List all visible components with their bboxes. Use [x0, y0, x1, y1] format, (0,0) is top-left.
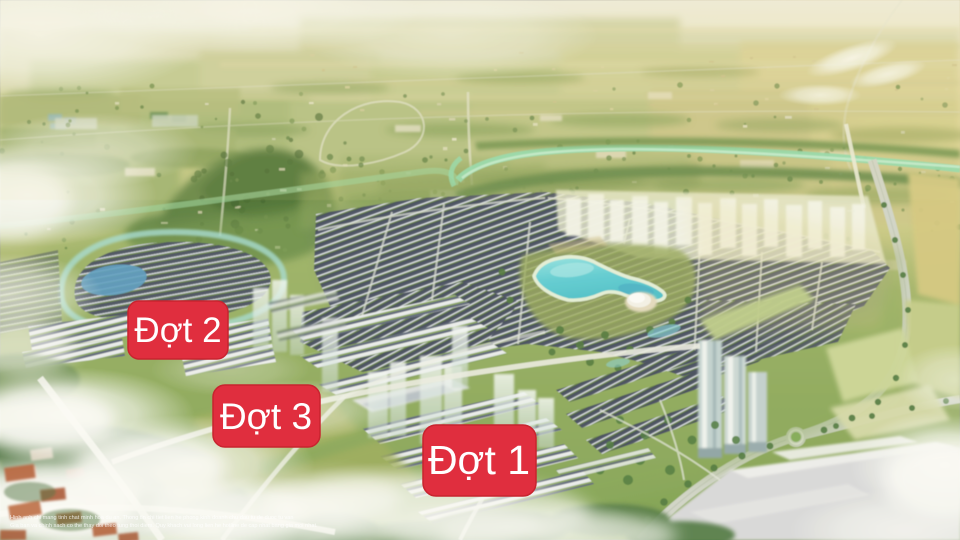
svg-text:Hinh anh chi mang tinh chat mi: Hinh anh chi mang tinh chat minh hoa du …	[10, 515, 294, 521]
svg-text:Đợt 2: Đợt 2	[134, 311, 221, 350]
svg-text:Đợt 1: Đợt 1	[428, 437, 530, 483]
svg-text:Gia ban va chinh sach co the t: Gia ban va chinh sach co the thay doi th…	[10, 523, 318, 529]
svg-text:Đợt 3: Đợt 3	[220, 396, 312, 437]
